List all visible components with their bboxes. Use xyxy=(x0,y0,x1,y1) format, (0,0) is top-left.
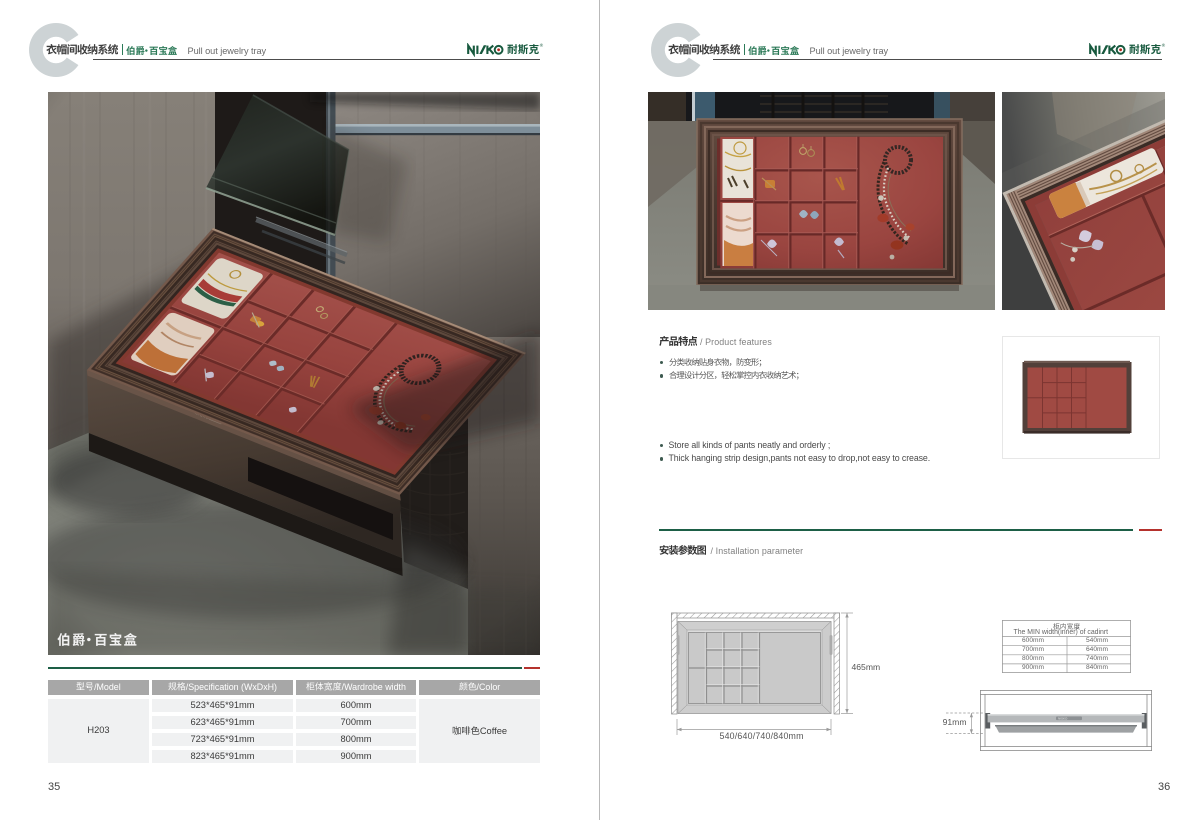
svg-text:NISKO: NISKO xyxy=(1058,717,1068,721)
